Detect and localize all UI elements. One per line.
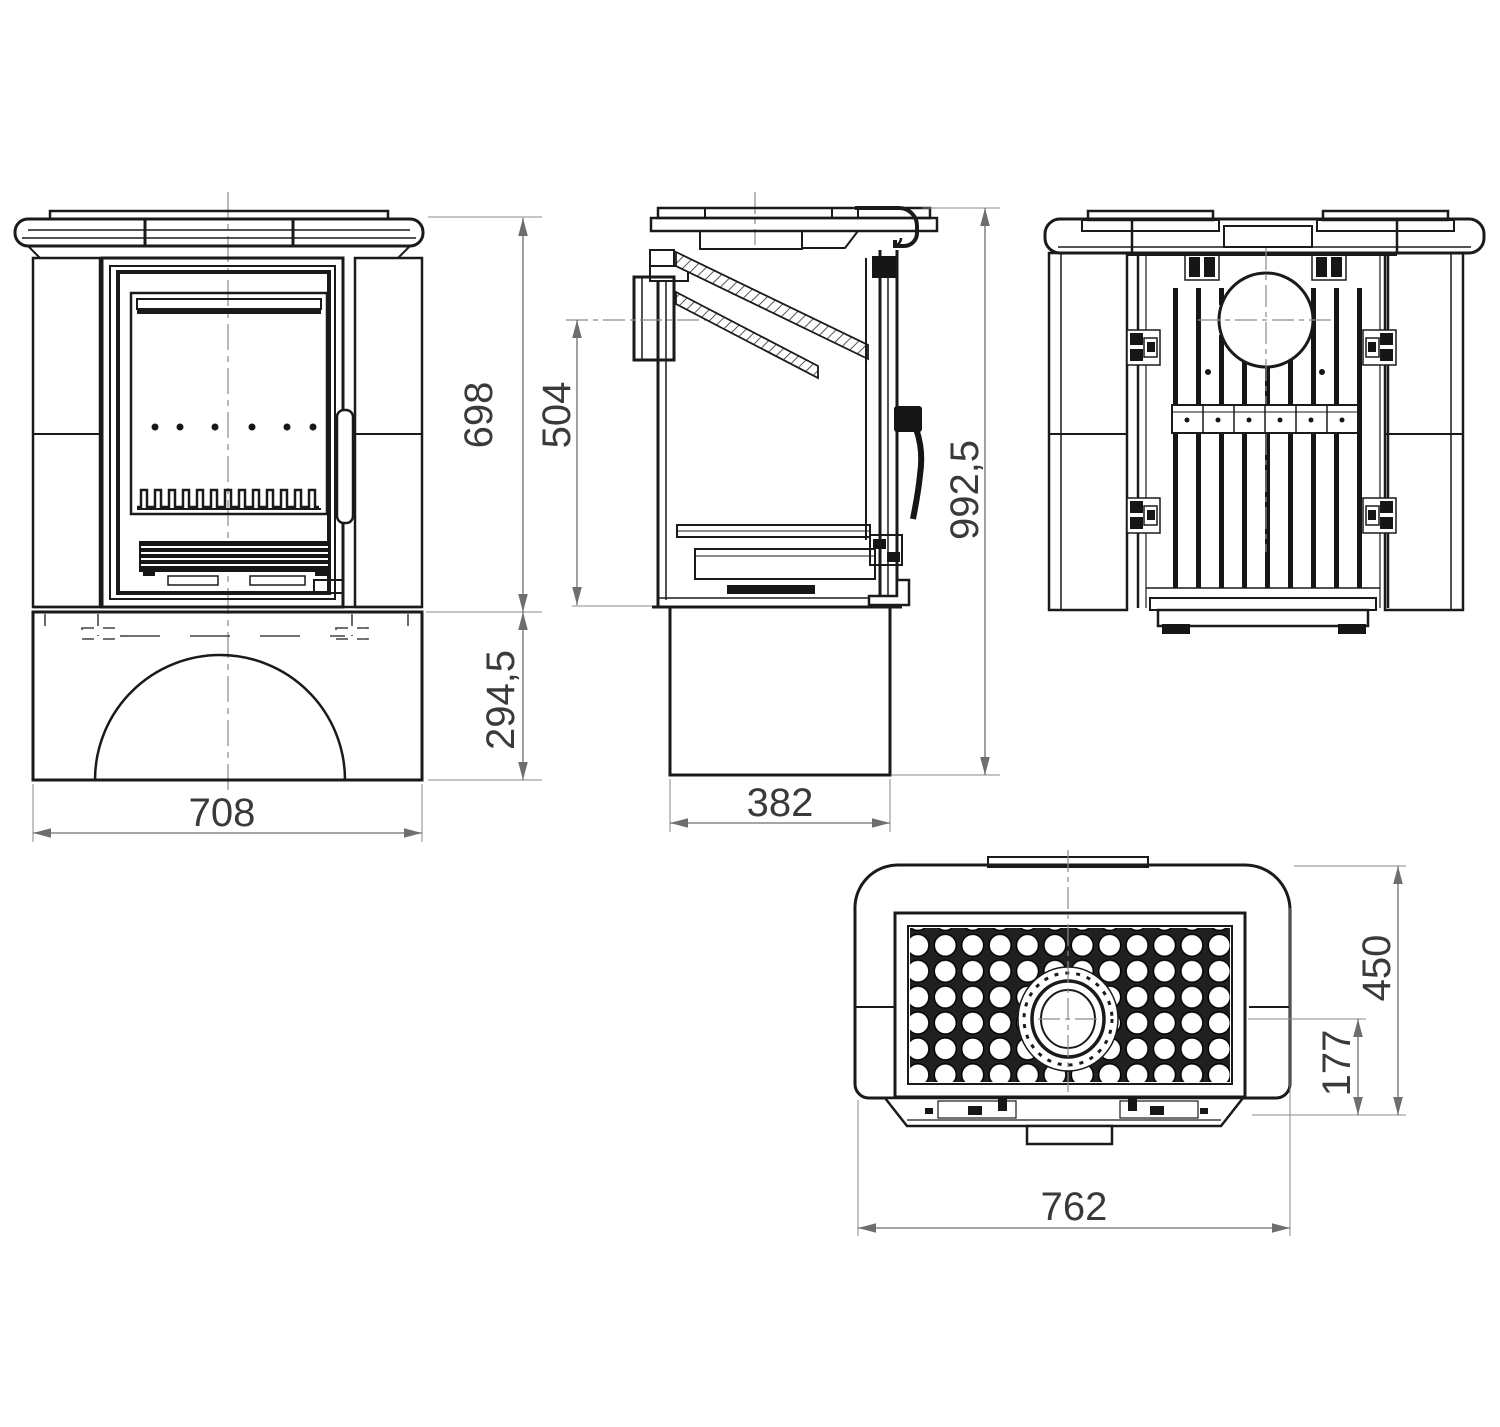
rear-bracket [885, 1098, 1243, 1144]
back-view [1045, 211, 1484, 634]
front-view [15, 192, 423, 792]
dimension-flue-to-rear: 177 [1315, 1019, 1359, 1115]
dimension-front-upper-height: 698 [457, 218, 523, 612]
dim-504-label: 504 [535, 382, 579, 449]
glass-air-holes [152, 424, 317, 431]
log-retainer-zigzag [137, 490, 321, 509]
baffle-plate-lower [676, 292, 818, 378]
dim-382-label: 382 [747, 781, 814, 825]
dimension-pedestal-depth: 382 [670, 781, 890, 825]
front-bottom-lip [869, 580, 909, 605]
side-pedestal [670, 607, 890, 775]
front-right-pillar [355, 258, 422, 607]
front-crown-molding [15, 219, 423, 258]
side-view [566, 192, 937, 775]
dimension-top-width: 762 [858, 1185, 1290, 1229]
foot-left [1162, 624, 1190, 634]
dimension-front-base-height: 294,5 [479, 612, 523, 780]
dim-294-5-label: 294,5 [479, 650, 523, 750]
foot-right [1338, 624, 1366, 634]
flue-shield-plate [1224, 226, 1312, 247]
back-panel [1127, 248, 1397, 634]
drawing-sheet: 698 294,5 708 504 992,5 382 450 177 762 [0, 0, 1500, 1427]
front-door-handle [337, 410, 353, 523]
dimensional-drawing: 698 294,5 708 504 992,5 382 450 177 762 [0, 0, 1500, 1427]
side-top-plate [651, 208, 937, 249]
dim-762-label: 762 [1041, 1185, 1108, 1229]
dim-450-label: 450 [1355, 935, 1399, 1002]
back-left-pillar [1049, 253, 1127, 610]
dim-698-label: 698 [457, 382, 501, 449]
dimension-side-flue-height: 504 [535, 320, 579, 605]
top-plate-front-curl [855, 208, 917, 246]
dimension-front-width: 708 [33, 791, 422, 835]
front-door-glass [131, 293, 327, 514]
dim-708-label: 708 [189, 791, 256, 835]
ash-drawer [695, 549, 875, 579]
dim-992-5-label: 992,5 [943, 440, 987, 540]
back-connector-bar [1172, 405, 1358, 433]
base-arch-cutout [95, 655, 345, 780]
side-door-column [869, 250, 922, 605]
dim-177-label: 177 [1315, 1030, 1359, 1097]
hidden-feet-dashed [45, 614, 408, 639]
door-hinge-top [872, 256, 896, 278]
front-air-grille [139, 541, 330, 585]
rear-flue-outlet-box [566, 277, 708, 360]
back-right-pillar [1385, 253, 1463, 610]
top-view [855, 850, 1290, 1144]
dimension-top-depth: 450 [1355, 866, 1399, 1115]
firebox-floor-grate [652, 525, 902, 607]
rear-bracket-notch [1027, 1126, 1112, 1144]
dimension-overall-height: 992,5 [943, 208, 987, 775]
front-left-pillar [33, 258, 100, 607]
